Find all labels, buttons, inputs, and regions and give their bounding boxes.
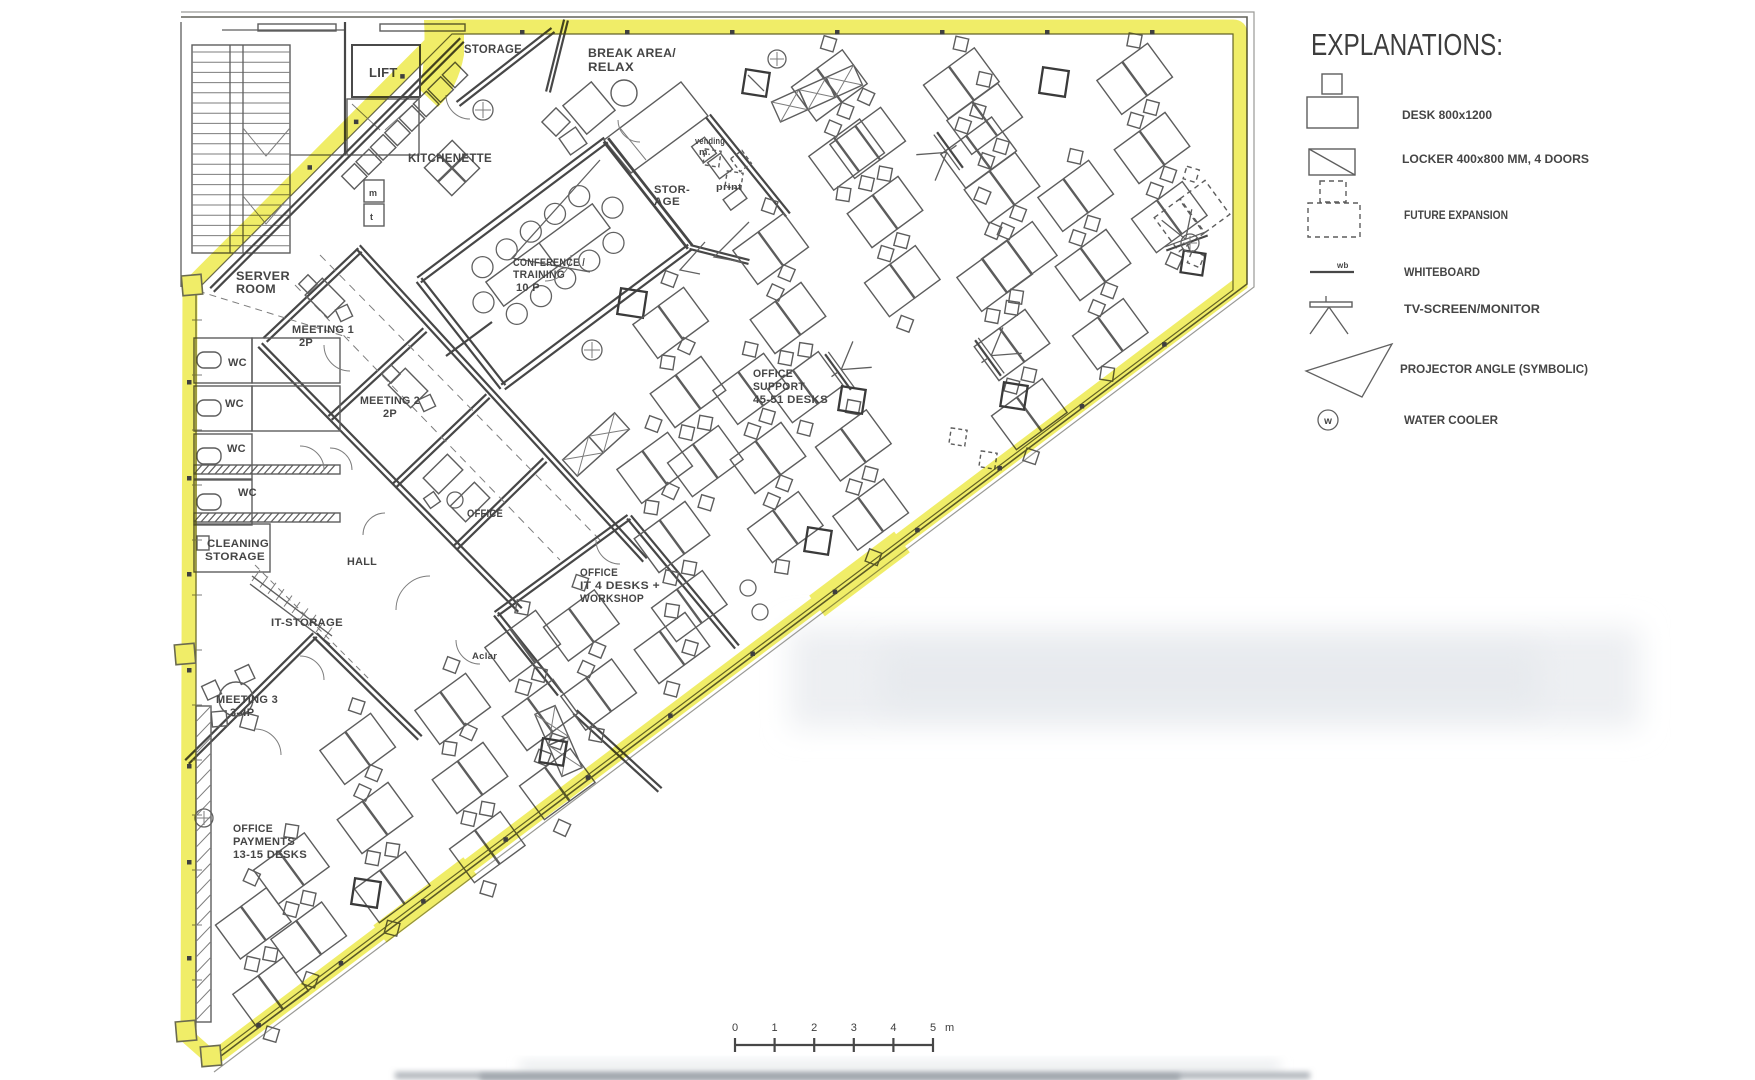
svg-text:PAYMENTS: PAYMENTS — [233, 836, 295, 848]
svg-text:OFFICE: OFFICE — [233, 823, 273, 835]
svg-text:13-15 DESKS: 13-15 DESKS — [233, 849, 307, 861]
svg-text:wb: wb — [1336, 261, 1349, 270]
svg-text:KITCHENETTE: KITCHENETTE — [408, 151, 492, 165]
svg-text:SUPPORT: SUPPORT — [753, 381, 805, 393]
svg-text:3: 3 — [851, 1022, 857, 1034]
svg-text:WC: WC — [228, 357, 247, 369]
svg-text:5: 5 — [930, 1022, 936, 1034]
svg-text:MEETING 3: MEETING 3 — [216, 694, 278, 706]
svg-text:Aclar: Aclar — [472, 651, 497, 662]
svg-text:HALL: HALL — [347, 556, 377, 568]
svg-text:45-51 DESKS: 45-51 DESKS — [753, 394, 828, 406]
svg-text:CONFERENCE /: CONFERENCE / — [513, 257, 585, 269]
svg-text:AGE: AGE — [654, 196, 680, 208]
svg-text:print: print — [716, 182, 743, 193]
svg-text:4: 4 — [890, 1022, 896, 1034]
svg-text:WC: WC — [225, 398, 244, 410]
svg-text:10 P: 10 P — [516, 282, 540, 294]
svg-text:vending: vending — [695, 136, 725, 147]
svg-text:2P: 2P — [299, 337, 313, 349]
svg-text:m.: m. — [699, 147, 711, 158]
svg-text:WATER COOLER: WATER COOLER — [1404, 413, 1498, 427]
svg-text:TRAINING: TRAINING — [513, 269, 565, 281]
svg-text:ROOM: ROOM — [236, 282, 276, 296]
svg-text:IT 4 DESKS +: IT 4 DESKS + — [580, 580, 660, 592]
svg-text:3-4P: 3-4P — [230, 707, 254, 719]
svg-text:SERVER: SERVER — [236, 269, 290, 283]
svg-text:m: m — [945, 1022, 954, 1034]
svg-text:IT-STORAGE: IT-STORAGE — [271, 617, 343, 629]
svg-text:OFFICE: OFFICE — [753, 368, 793, 380]
svg-text:2: 2 — [811, 1022, 817, 1034]
svg-text:WC: WC — [238, 487, 257, 499]
svg-text:BREAK AREA/: BREAK AREA/ — [588, 46, 676, 60]
svg-text:STORAGE: STORAGE — [205, 551, 265, 563]
svg-text:PROJECTOR ANGLE (SYMBOLIC): PROJECTOR ANGLE (SYMBOLIC) — [1400, 362, 1588, 376]
svg-text:EXPLANATIONS:: EXPLANATIONS: — [1311, 27, 1503, 62]
svg-text:m: m — [369, 188, 377, 198]
svg-text:STOR-: STOR- — [654, 184, 690, 196]
svg-text:t: t — [370, 212, 373, 222]
svg-text:0: 0 — [732, 1022, 738, 1034]
svg-text:OFFICE: OFFICE — [580, 567, 618, 579]
svg-text:w: w — [1323, 416, 1332, 427]
svg-text:MEETING 1: MEETING 1 — [292, 324, 354, 336]
svg-text:TV-SCREEN/MONITOR: TV-SCREEN/MONITOR — [1404, 302, 1540, 316]
svg-text:WHITEBOARD: WHITEBOARD — [1404, 265, 1480, 279]
svg-text:RELAX: RELAX — [588, 60, 634, 74]
svg-text:FUTURE EXPANSION: FUTURE EXPANSION — [1404, 208, 1508, 222]
svg-text:STORAGE: STORAGE — [464, 42, 522, 56]
svg-text:WC: WC — [227, 443, 246, 455]
svg-text:WORKSHOP: WORKSHOP — [580, 593, 644, 605]
svg-text:LOCKER 400x800 MM, 4 DOORS: LOCKER 400x800 MM, 4 DOORS — [1402, 152, 1589, 166]
svg-text:1: 1 — [772, 1022, 778, 1034]
svg-text:DESK 800x1200: DESK 800x1200 — [1402, 108, 1492, 122]
svg-text:CLEANING: CLEANING — [207, 538, 269, 550]
svg-text:2P: 2P — [383, 408, 397, 420]
svg-text:OFFICE: OFFICE — [467, 508, 503, 520]
svg-text:MEETING 2: MEETING 2 — [360, 395, 420, 407]
